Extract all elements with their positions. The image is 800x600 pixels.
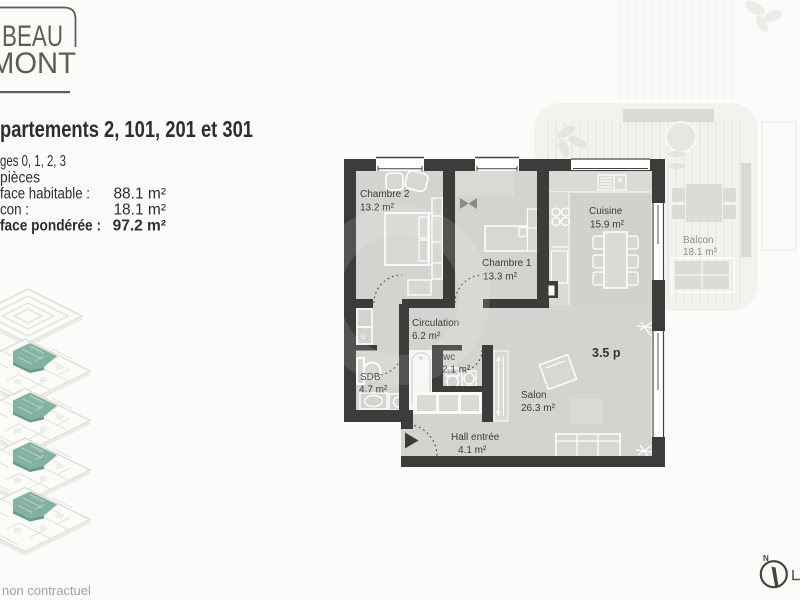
svg-text:MONT: MONT [0, 47, 76, 80]
svg-text:Chambre 2: Chambre 2 [360, 189, 410, 200]
svg-text:15.9 m²: 15.9 m² [590, 220, 625, 231]
svg-text:6.2 m²: 6.2 m² [412, 331, 441, 342]
svg-text:partements 2, 101, 201 et 301: partements 2, 101, 201 et 301 [0, 116, 253, 142]
svg-text:3.5 p: 3.5 p [592, 346, 621, 360]
svg-text:u: u [361, 332, 365, 341]
svg-text:97.2 m²: 97.2 m² [113, 218, 166, 235]
svg-text:88.1 m²: 88.1 m² [113, 186, 166, 203]
svg-text:Cuisine: Cuisine [589, 206, 623, 217]
svg-text:ges 0, 1, 2, 3: ges 0, 1, 2, 3 [0, 153, 66, 170]
svg-text:18.1 m²: 18.1 m² [683, 247, 718, 258]
svg-text:18.1 m²: 18.1 m² [113, 202, 166, 219]
svg-text:4.7 m²: 4.7 m² [359, 385, 388, 396]
svg-text:Salon: Salon [521, 390, 547, 401]
svg-text:face pondérée :: face pondérée : [0, 218, 101, 235]
svg-text:con :: con : [0, 202, 29, 219]
svg-text:Hall entrée: Hall entrée [451, 432, 500, 443]
svg-text:Balcon: Balcon [683, 235, 714, 246]
svg-text:face habitable :: face habitable : [0, 186, 90, 203]
svg-text:26.3 m²: 26.3 m² [521, 403, 556, 414]
svg-text:non contractuel: non contractuel [2, 583, 91, 598]
svg-text:pièces: pièces [0, 170, 40, 187]
svg-text:Chambre 1: Chambre 1 [482, 258, 532, 269]
svg-text:4.1 m²: 4.1 m² [458, 445, 487, 456]
